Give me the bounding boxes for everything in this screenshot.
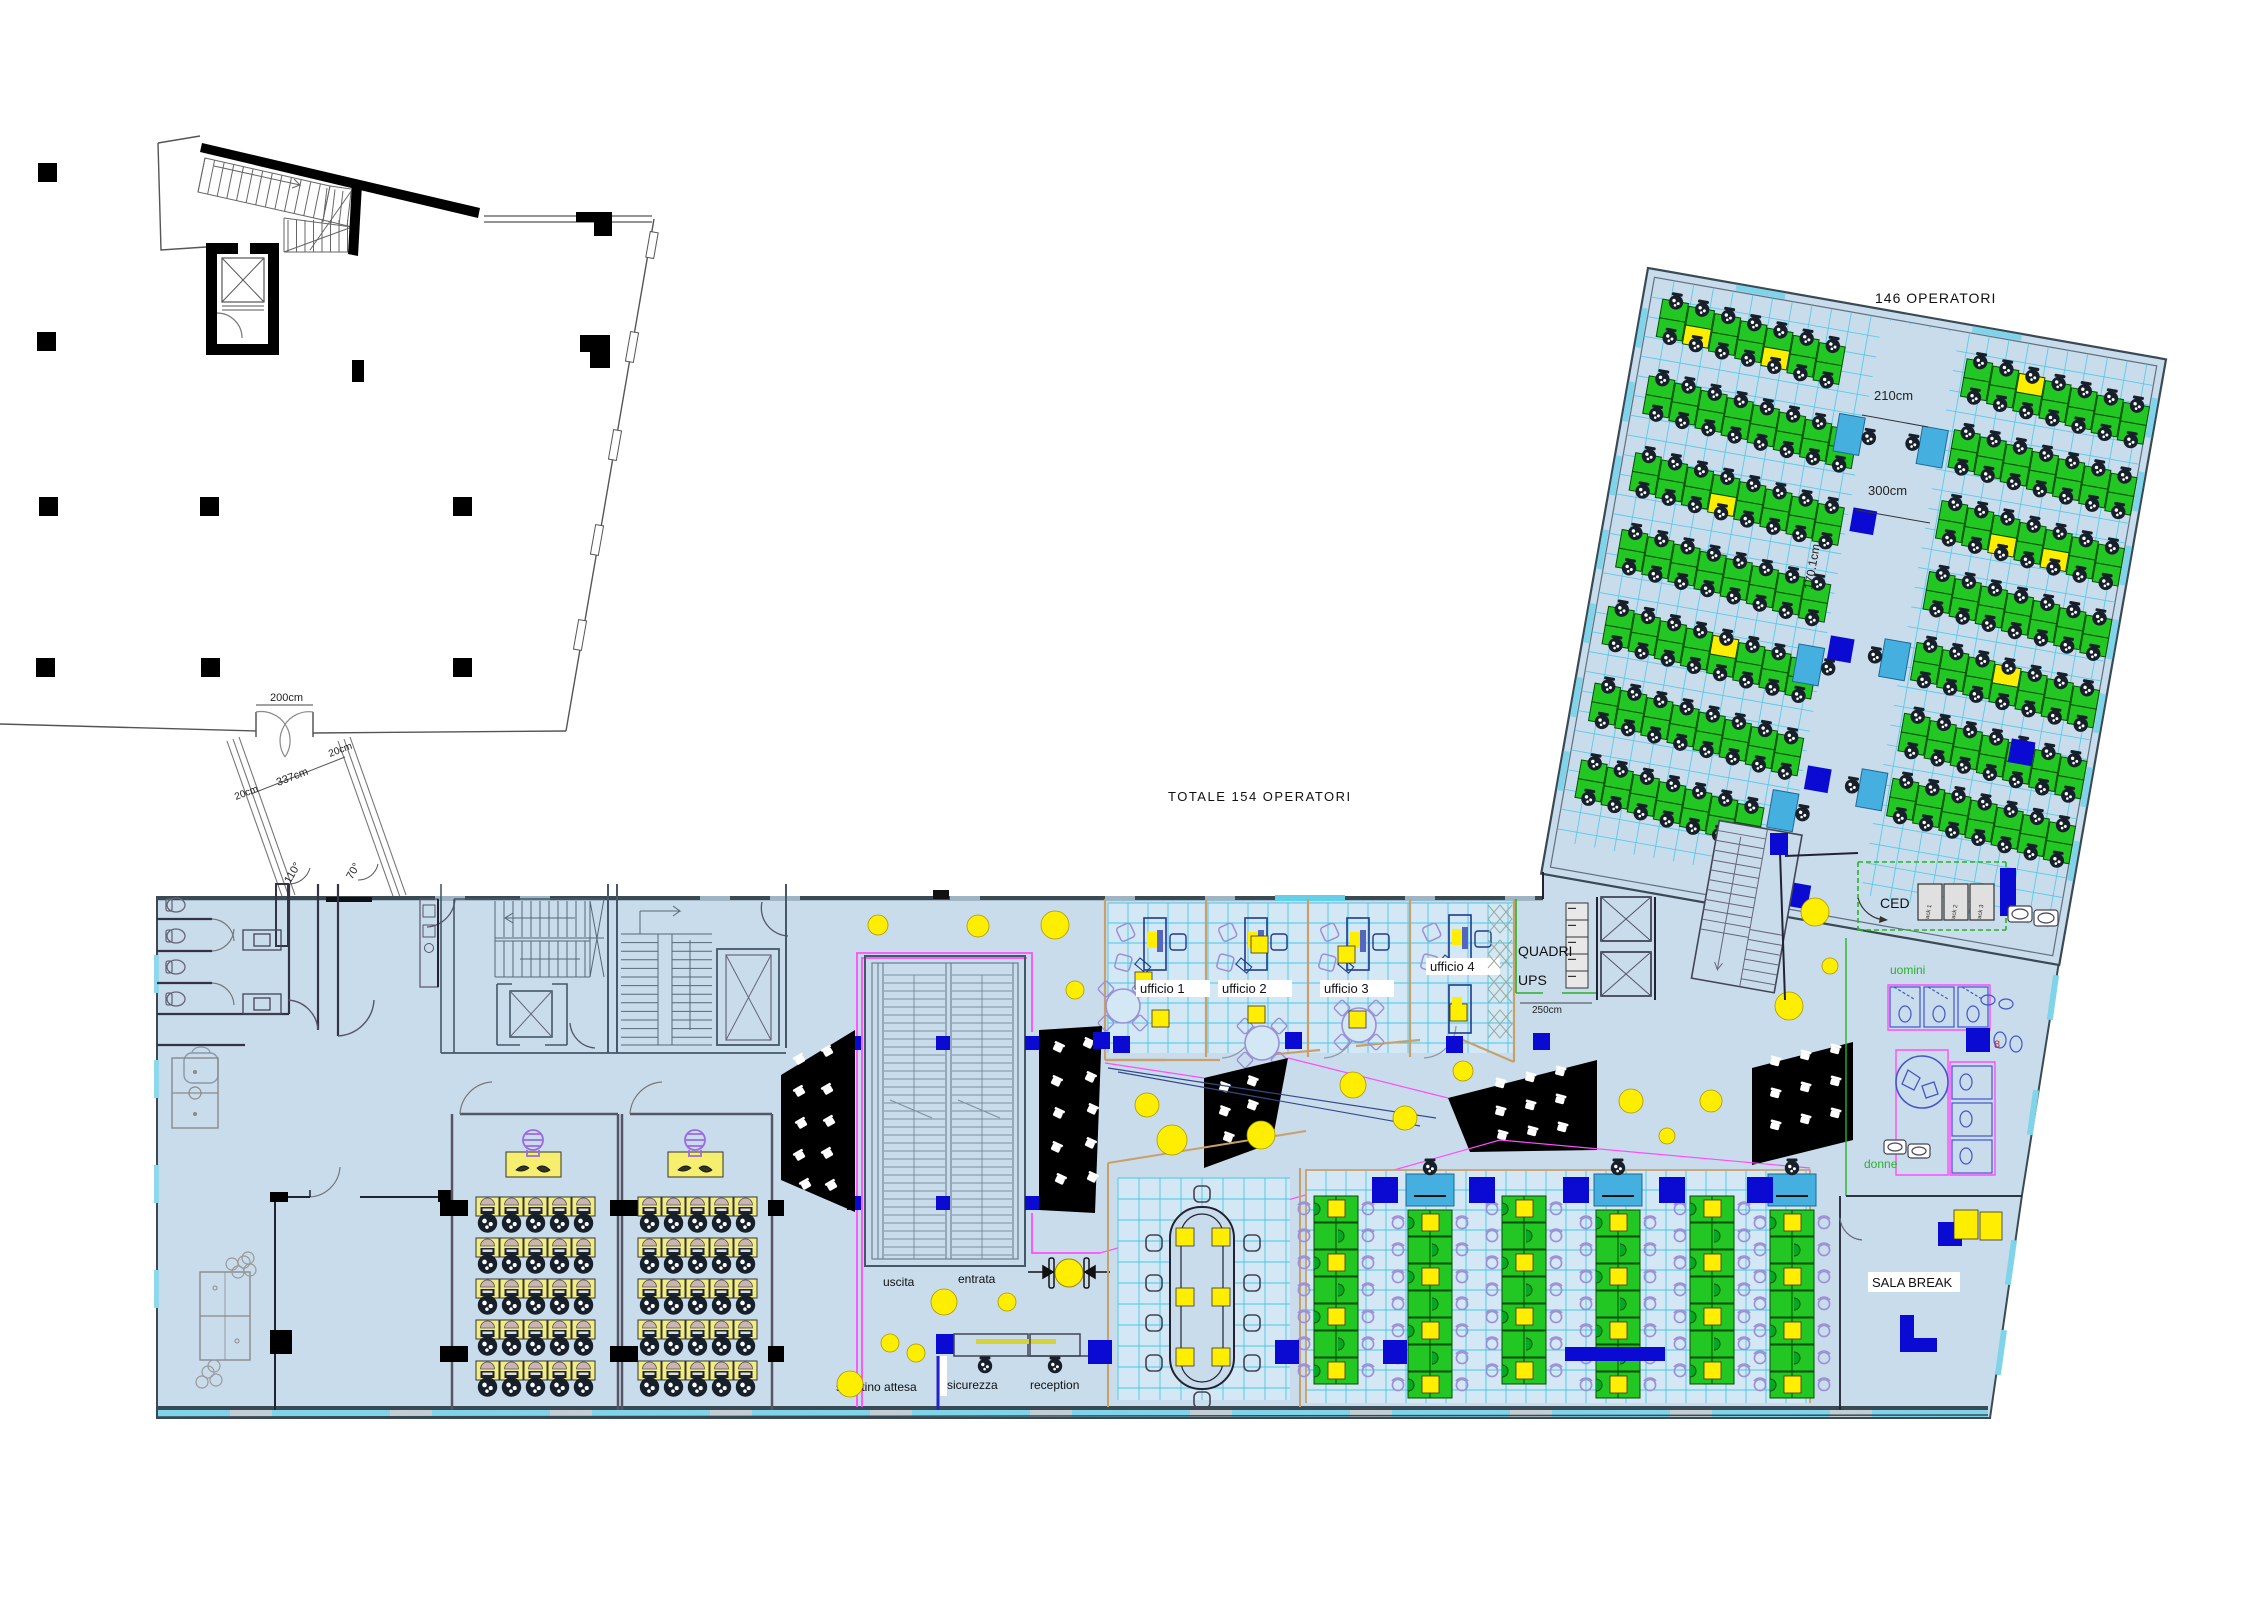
svg-text:ufficio 2: ufficio 2: [1222, 981, 1267, 996]
svg-text:210cm: 210cm: [1874, 388, 1913, 403]
svg-text:uscita: uscita: [883, 1275, 915, 1289]
svg-text:entrata: entrata: [958, 1272, 996, 1286]
svg-text:uomini: uomini: [1890, 963, 1925, 977]
svg-text:CED: CED: [1880, 895, 1910, 911]
svg-text:donne: donne: [1864, 1157, 1898, 1171]
svg-text:146 OPERATORI: 146 OPERATORI: [1875, 290, 1996, 306]
svg-text:8: 8: [1994, 1039, 2000, 1051]
svg-text:ufficio 1: ufficio 1: [1140, 981, 1185, 996]
svg-text:ufficio 4: ufficio 4: [1430, 959, 1475, 974]
svg-text:SALA BREAK: SALA BREAK: [1872, 1275, 1953, 1290]
svg-text:250cm: 250cm: [1532, 1005, 1562, 1016]
svg-text:300cm: 300cm: [1868, 483, 1907, 498]
svg-text:TOTALE 154 OPERATORI: TOTALE 154 OPERATORI: [1168, 789, 1352, 804]
svg-text:reception: reception: [1030, 1378, 1079, 1392]
svg-text:▬▬: ▬▬: [1568, 922, 1576, 927]
svg-text:sicurezza: sicurezza: [947, 1378, 998, 1392]
svg-text:ufficio 3: ufficio 3: [1324, 981, 1369, 996]
svg-text:▬▬: ▬▬: [1568, 905, 1576, 910]
svg-text:200cm: 200cm: [270, 692, 303, 704]
svg-text:▬▬: ▬▬: [1568, 973, 1576, 978]
svg-text:QUADRI: QUADRI: [1518, 943, 1572, 959]
svg-text:UPS: UPS: [1518, 972, 1547, 988]
